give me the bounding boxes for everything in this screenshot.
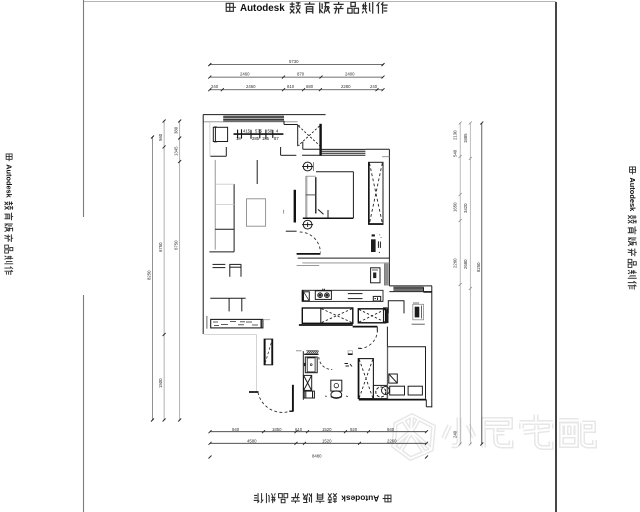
svg-text:870: 870 xyxy=(297,72,305,77)
svg-text:680: 680 xyxy=(306,84,314,89)
svg-text:2460: 2460 xyxy=(246,84,256,89)
svg-text:2460: 2460 xyxy=(240,72,250,77)
svg-text:1520: 1520 xyxy=(322,427,332,432)
svg-text:3420: 3420 xyxy=(463,203,468,213)
svg-text:4580: 4580 xyxy=(247,439,257,444)
svg-text:18: 18 xyxy=(236,136,241,141)
svg-text:540: 540 xyxy=(453,149,458,157)
svg-text:920: 920 xyxy=(350,427,358,432)
svg-text:2130: 2130 xyxy=(453,130,458,140)
svg-text:610: 610 xyxy=(295,427,303,432)
svg-text:285: 285 xyxy=(252,136,260,141)
svg-text:185: 185 xyxy=(262,136,270,141)
svg-text:8480: 8480 xyxy=(312,454,322,459)
svg-text:1650: 1650 xyxy=(453,202,458,212)
svg-text:560: 560 xyxy=(158,133,163,141)
svg-text:240: 240 xyxy=(370,84,378,89)
svg-text:1500: 1500 xyxy=(158,378,163,388)
svg-text:2260: 2260 xyxy=(453,258,458,268)
svg-text:6750: 6750 xyxy=(174,240,179,250)
svg-text:2400: 2400 xyxy=(345,72,355,77)
svg-text:940: 940 xyxy=(232,427,240,432)
svg-text:2680: 2680 xyxy=(463,259,468,269)
svg-text:1520: 1520 xyxy=(322,439,332,444)
svg-text:810: 810 xyxy=(287,84,295,89)
svg-text:940: 940 xyxy=(387,427,395,432)
svg-text:8250: 8250 xyxy=(476,262,481,272)
svg-text:2280: 2280 xyxy=(341,84,351,89)
svg-text:87: 87 xyxy=(274,136,279,141)
svg-text:575: 575 xyxy=(255,128,263,133)
svg-text:58: 58 xyxy=(268,129,273,134)
svg-text:1885: 1885 xyxy=(463,133,468,143)
svg-text:5730: 5730 xyxy=(289,59,299,64)
svg-text:240: 240 xyxy=(453,430,458,438)
svg-text:1345: 1345 xyxy=(174,146,179,156)
svg-text:380: 380 xyxy=(174,126,179,134)
svg-text:6750: 6750 xyxy=(158,242,163,252)
svg-text:1850: 1850 xyxy=(272,427,282,432)
svg-text:240: 240 xyxy=(211,84,219,89)
svg-text:8250: 8250 xyxy=(147,270,152,280)
svg-text:415: 415 xyxy=(243,129,251,134)
svg-text:2260: 2260 xyxy=(387,439,397,444)
